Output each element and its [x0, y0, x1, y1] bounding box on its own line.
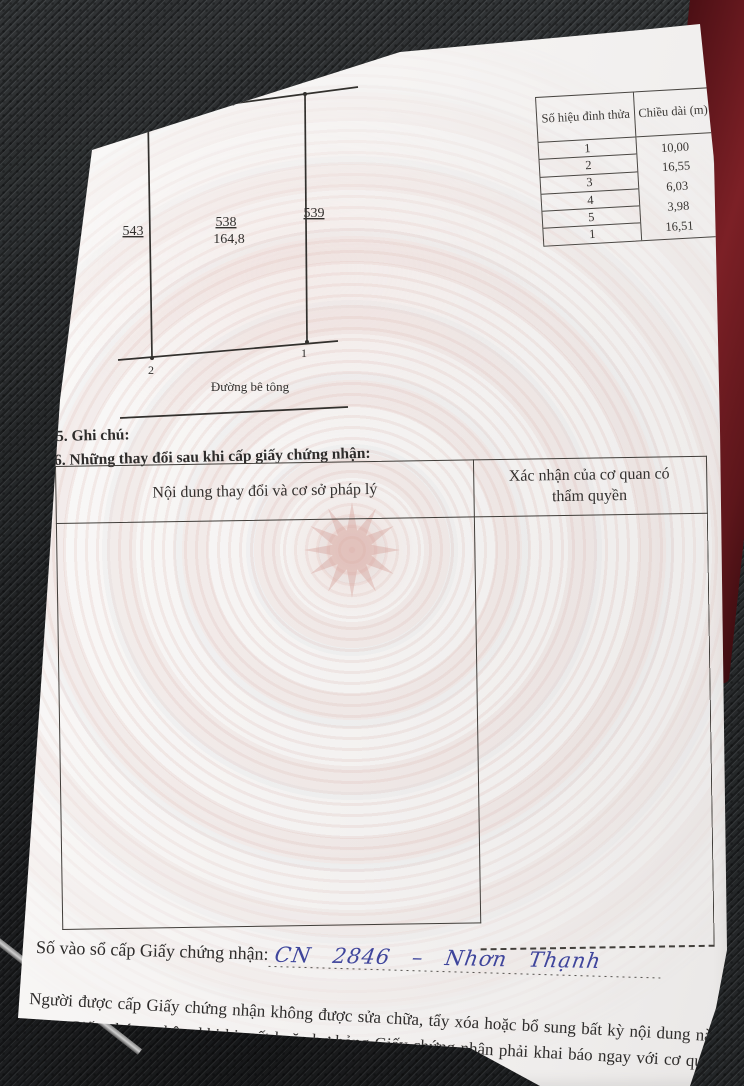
photo-of-certificate: 4. Sơ đồ thửa đất, tài sản gắn liền với … [0, 0, 744, 1086]
vertex-label-2: 2 [148, 363, 154, 377]
adjacent-parcel-right: 539 [304, 206, 325, 221]
edge-length: 6,03 [666, 180, 689, 194]
changes-table-col2-body [473, 512, 714, 950]
handwritten-registry-number: CN 2846 – Nhơn Thạnh [273, 943, 603, 973]
vertex-table-col2-header: Chiều dài (m) [634, 88, 712, 137]
changes-table-col1-header: Nội dung thay đổi và cơ sở pháp lý [55, 459, 475, 524]
edge-length: 16,51 [665, 219, 694, 233]
changes-table-col1-body [56, 516, 481, 930]
changes-table-col2-header: Xác nhận của cơ quan có thẩm quyền [472, 456, 707, 518]
parcel-number: 538 [216, 215, 237, 230]
edge-length: 3,98 [667, 199, 690, 213]
parcel-area: 164,8 [213, 232, 245, 247]
vertex-table-col1-header: Số hiệu đỉnh thửa [536, 93, 635, 143]
road-label: Đường bê tông [211, 379, 290, 394]
changes-table: Nội dung thay đổi và cơ sở pháp lý Xác n… [55, 456, 715, 966]
document-page: 4. Sơ đồ thửa đất, tài sản gắn liền với … [0, 0, 744, 1086]
edge-length: 10,00 [661, 140, 690, 154]
road-edge-line [120, 407, 348, 418]
vertex-label-1: 1 [301, 346, 307, 360]
section5-title: 5. Ghi chú: [56, 426, 130, 446]
vertex-length-table: Số hiệu đỉnh thửa 1 2 3 4 5 1 Chiều dài … [535, 87, 719, 246]
adjacent-parcel-left: 543 [123, 224, 144, 239]
registry-label: Số vào sổ cấp Giấy chứng nhận: [36, 937, 269, 964]
edge-length: 16,55 [662, 160, 691, 174]
